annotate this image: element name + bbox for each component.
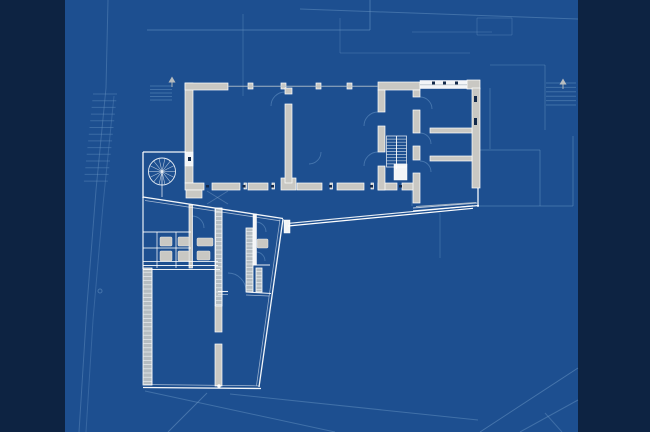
window-glass-tick — [206, 185, 209, 188]
strip-body — [246, 228, 253, 292]
wall-rect — [413, 110, 420, 133]
wall-rect — [378, 82, 420, 90]
wall-rect — [212, 183, 240, 190]
wall-rect — [430, 156, 472, 161]
wall-rect — [337, 183, 364, 190]
window-glass-tick — [329, 185, 332, 188]
sanitary-fixture — [197, 238, 213, 246]
wall-rect — [186, 190, 202, 198]
window-glass-tick — [370, 185, 373, 188]
white-wall-rect — [284, 220, 290, 233]
wall-rect — [189, 205, 193, 268]
window-glass-tick — [188, 157, 191, 161]
blueprint-canvas — [0, 0, 650, 432]
wall-rect — [378, 126, 385, 152]
side-band — [0, 0, 65, 432]
window-glass-tick — [455, 82, 458, 85]
door-pivot-dot — [217, 384, 221, 388]
sanitary-fixture — [160, 251, 172, 261]
window-glass-tick — [474, 96, 477, 102]
wall-rect — [185, 83, 228, 90]
side-band — [578, 0, 650, 432]
sanitary-fixture — [178, 237, 189, 246]
wall-rect — [285, 104, 292, 183]
window-glass-tick — [443, 82, 446, 85]
sanitary-fixture — [160, 237, 172, 246]
wall-rect — [472, 88, 480, 188]
sanitary-fixture — [197, 251, 210, 260]
wall-rect — [413, 90, 420, 97]
hatched-wall-strip — [143, 268, 152, 385]
wall-rect — [413, 146, 420, 160]
window-glass-tick — [271, 185, 274, 188]
wall-rect — [413, 173, 420, 203]
white-wall-rect — [253, 214, 257, 265]
wall-rect — [297, 183, 322, 190]
wall-rect — [430, 128, 472, 133]
window-glass-tick — [399, 185, 402, 188]
wall-rect — [185, 183, 204, 190]
sanitary-fixture — [178, 251, 189, 261]
window-glass-tick — [243, 185, 246, 188]
hatched-wall-strip — [246, 228, 253, 292]
window-glass-tick — [432, 82, 435, 85]
wall-rect — [248, 183, 268, 190]
wall-rect — [215, 344, 222, 386]
hatched-wall-strip — [256, 268, 262, 292]
background-field — [0, 0, 650, 432]
wall-rect — [378, 166, 385, 190]
wall-rect — [285, 88, 292, 94]
white-wall-rect — [394, 164, 407, 180]
sanitary-fixture — [257, 239, 268, 248]
floor-plan-svg — [0, 0, 650, 432]
wall-rect — [215, 306, 222, 332]
window-glass-tick — [474, 118, 477, 125]
wall-rect — [378, 90, 385, 112]
wall-rect — [185, 83, 193, 183]
